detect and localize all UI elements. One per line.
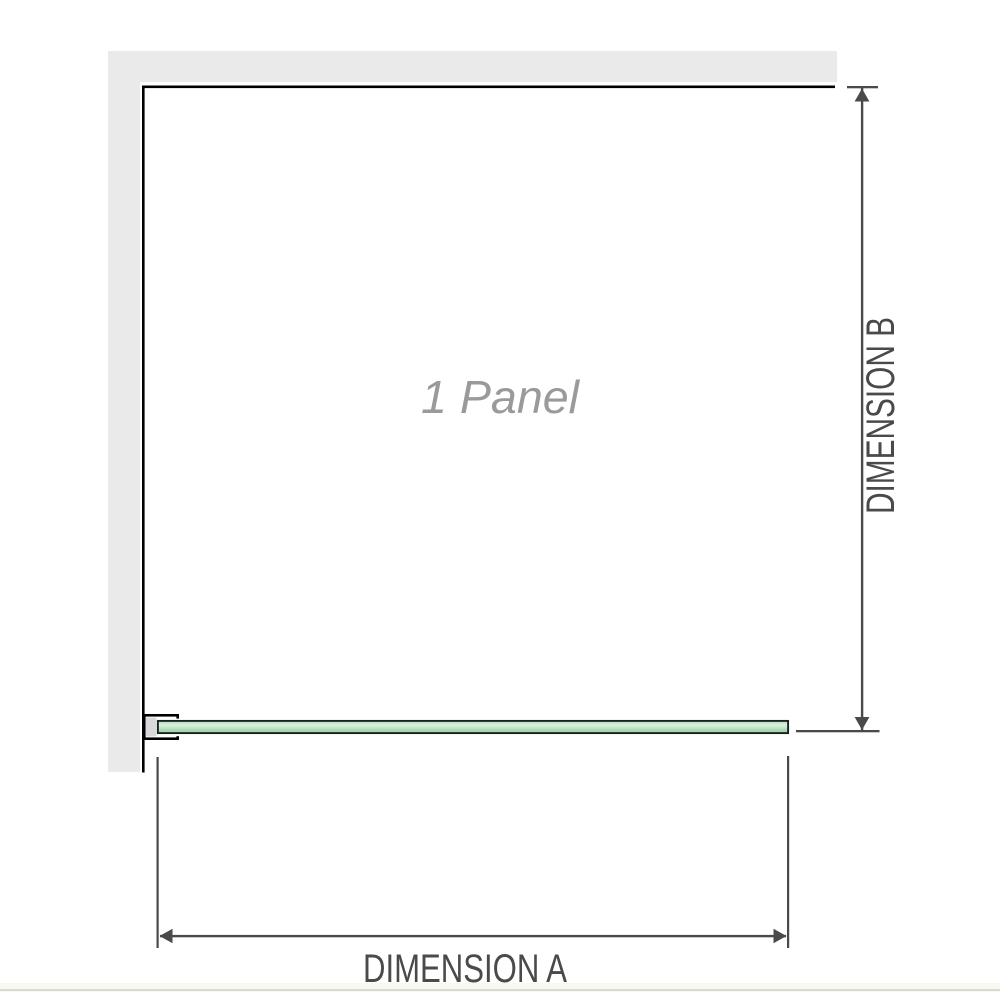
svg-text:1 Panel: 1 Panel	[421, 371, 581, 423]
svg-text:DIMENSION B: DIMENSION B	[859, 317, 903, 514]
svg-text:DIMENSION A: DIMENSION A	[363, 947, 567, 991]
